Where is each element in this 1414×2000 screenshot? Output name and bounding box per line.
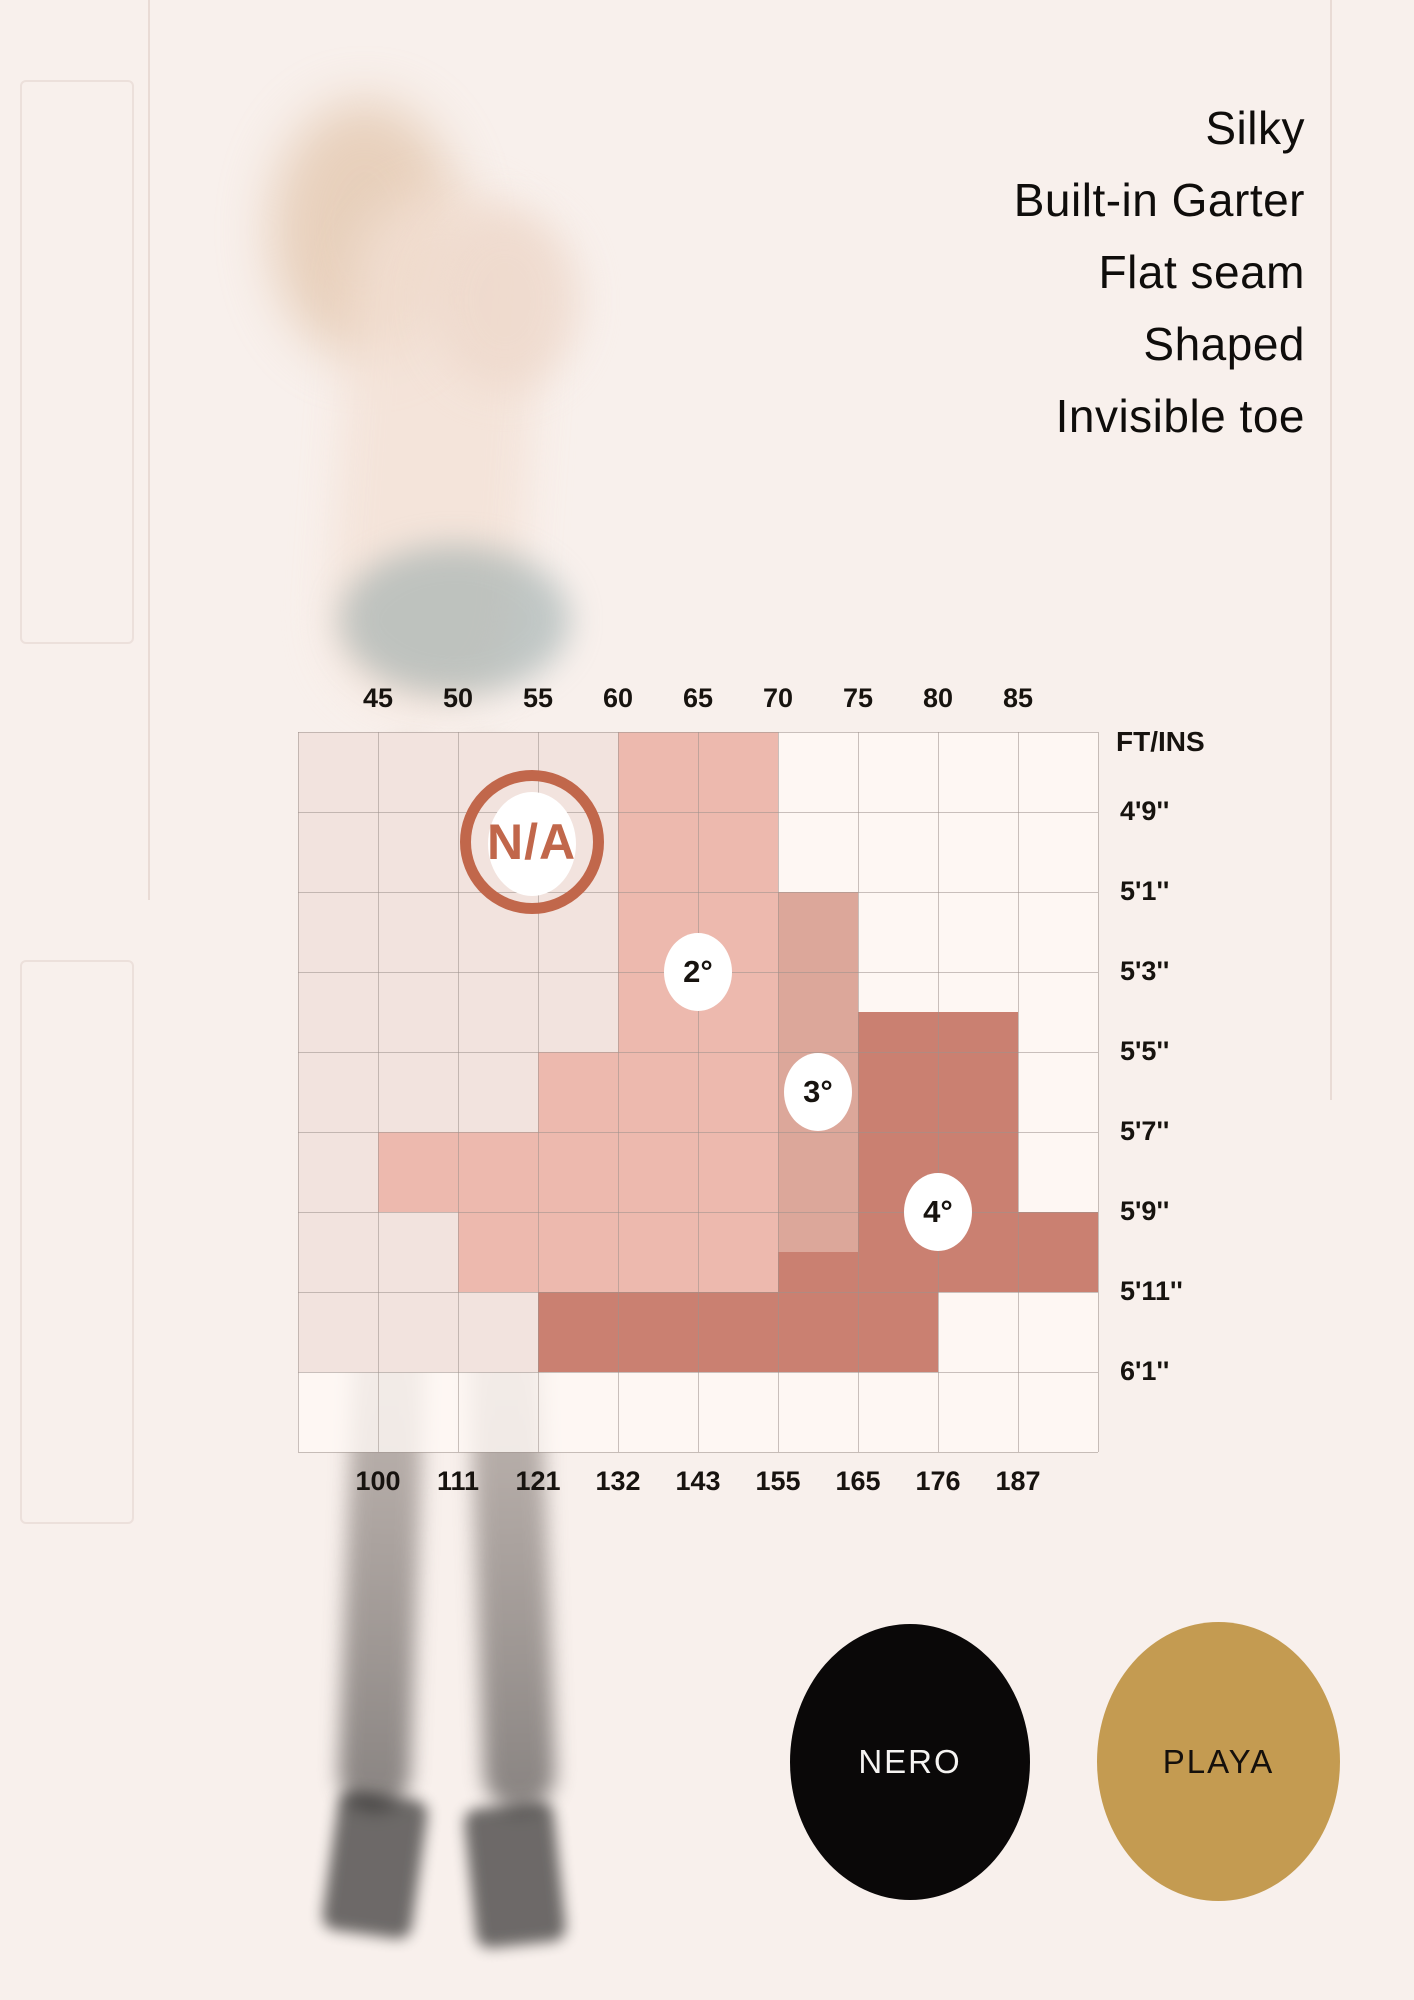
grid-line-horizontal <box>298 1212 1098 1213</box>
size-region-3deg <box>778 1212 858 1252</box>
grid-line-vertical <box>618 732 619 1452</box>
grid-line-horizontal <box>298 1452 1098 1453</box>
kg-tick: 80 <box>908 683 968 714</box>
grid-line-vertical <box>778 732 779 1452</box>
size-badge-4deg: 4° <box>904 1173 972 1251</box>
size-region-4deg <box>858 1212 1098 1292</box>
grid-line-vertical <box>378 732 379 1452</box>
lbs-tick: 143 <box>663 1466 733 1497</box>
ftins-tick: 5'7'' <box>1120 1116 1169 1147</box>
ftins-tick: 5'3'' <box>1120 956 1169 987</box>
grid-line-vertical <box>1018 732 1019 1452</box>
wall-edge-line <box>148 0 150 900</box>
grid-line-vertical <box>298 732 299 1452</box>
size-region-n-a <box>298 1052 538 1132</box>
ftins-tick: 4'9'' <box>1120 796 1169 827</box>
kg-tick: 70 <box>748 683 808 714</box>
kg-tick: 60 <box>588 683 648 714</box>
grid-line-horizontal <box>298 1292 1098 1293</box>
grid-line-horizontal <box>298 812 1098 813</box>
page: SilkyBuilt-in GarterFlat seamShapedInvis… <box>0 0 1414 2000</box>
size-badge-2deg: 2° <box>664 933 732 1011</box>
ftins-tick: 5'5'' <box>1120 1036 1169 1067</box>
lbs-tick: 100 <box>343 1466 413 1497</box>
feature-item: Silky <box>1014 92 1305 164</box>
grid-line-horizontal <box>298 1372 1098 1373</box>
lbs-tick: 155 <box>743 1466 813 1497</box>
grid-line-horizontal <box>298 1052 1098 1053</box>
wall-panel <box>20 960 134 1524</box>
kg-tick: 85 <box>988 683 1048 714</box>
size-region-4deg <box>778 1252 858 1292</box>
color-swatch-playa[interactable]: PLAYA <box>1097 1622 1340 1901</box>
size-region-n-a <box>298 1132 378 1212</box>
ftins-axis-title: FT/INS <box>1116 726 1205 758</box>
lbs-tick: 121 <box>503 1466 573 1497</box>
lbs-tick: 176 <box>903 1466 973 1497</box>
feature-item: Flat seam <box>1014 236 1305 308</box>
background-model-heel <box>321 1789 430 1940</box>
feature-item: Built-in Garter <box>1014 164 1305 236</box>
background-model-hair <box>270 100 460 360</box>
color-swatch-label: PLAYA <box>1163 1743 1275 1781</box>
size-region-n-a <box>298 1292 538 1372</box>
size-region-4deg <box>538 1292 938 1372</box>
na-badge-label: N/A <box>462 807 602 877</box>
size-badge-3deg: 3° <box>784 1053 852 1131</box>
grid-line-vertical <box>938 732 939 1452</box>
ftins-tick: 5'11'' <box>1120 1276 1183 1307</box>
feature-item: Invisible toe <box>1014 380 1305 452</box>
feature-list: SilkyBuilt-in GarterFlat seamShapedInvis… <box>1014 92 1305 452</box>
grid-line-vertical <box>698 732 699 1452</box>
lbs-tick: 132 <box>583 1466 653 1497</box>
grid-line-horizontal <box>298 1132 1098 1133</box>
ftins-tick: 5'9'' <box>1120 1196 1169 1227</box>
color-swatch-nero[interactable]: NERO <box>790 1624 1030 1900</box>
grid-line-vertical <box>858 732 859 1452</box>
background-model-shoulder <box>430 210 580 390</box>
background-model-body <box>322 184 548 716</box>
size-region-2deg <box>378 1132 778 1212</box>
grid-line-vertical <box>1098 732 1099 1452</box>
ftins-tick: 6'1'' <box>1120 1356 1169 1387</box>
grid-line-horizontal <box>298 892 1098 893</box>
ftins-tick: 5'1'' <box>1120 876 1169 907</box>
lbs-tick: 187 <box>983 1466 1053 1497</box>
background-model-garment <box>340 545 570 695</box>
kg-tick: 75 <box>828 683 888 714</box>
kg-tick: 65 <box>668 683 728 714</box>
background-model-heel <box>463 1801 567 1950</box>
feature-item: Shaped <box>1014 308 1305 380</box>
wall-edge-line <box>1330 0 1332 1100</box>
size-region-2deg <box>538 1052 778 1132</box>
kg-tick: 45 <box>348 683 408 714</box>
kg-tick: 50 <box>428 683 488 714</box>
wall-panel <box>20 80 134 644</box>
grid-line-horizontal <box>298 732 1098 733</box>
lbs-tick: 111 <box>423 1466 493 1497</box>
lbs-tick: 165 <box>823 1466 893 1497</box>
grid-line-vertical <box>458 732 459 1452</box>
color-swatch-label: NERO <box>858 1743 961 1781</box>
kg-tick: 55 <box>508 683 568 714</box>
